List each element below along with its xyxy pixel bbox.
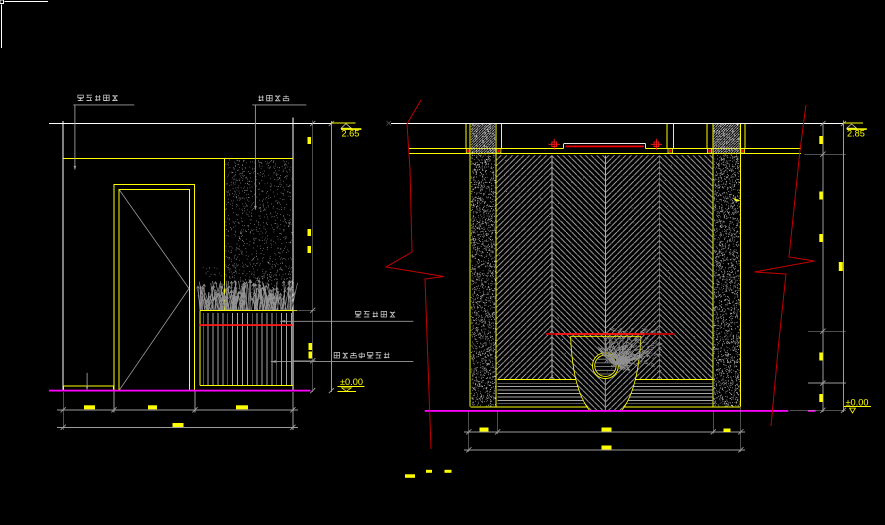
svg-text:2.85: 2.85 [847,129,865,139]
svg-text:2.65: 2.65 [342,128,360,138]
svg-text:±0.00: ±0.00 [340,377,363,387]
